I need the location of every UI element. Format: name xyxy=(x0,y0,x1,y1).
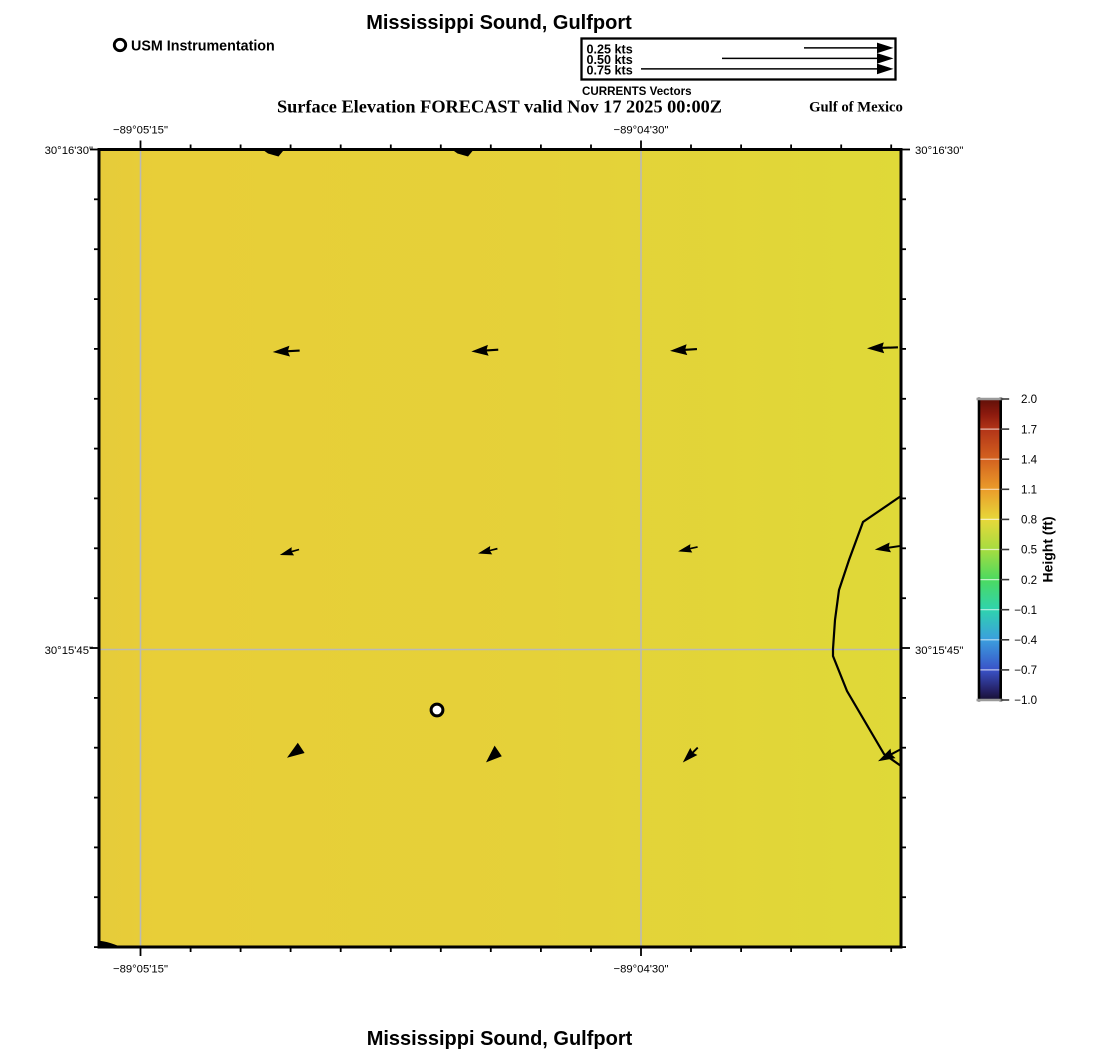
svg-text:1.7: 1.7 xyxy=(1021,423,1037,436)
svg-text:30°16'30": 30°16'30" xyxy=(45,145,93,157)
svg-text:0.8: 0.8 xyxy=(1021,514,1037,527)
svg-text:1.4: 1.4 xyxy=(1021,453,1038,466)
svg-text:−1.0: −1.0 xyxy=(1014,694,1037,707)
svg-text:Surface Elevation FORECAST val: Surface Elevation FORECAST valid Nov 17 … xyxy=(277,97,722,117)
svg-text:−0.7: −0.7 xyxy=(1014,664,1037,677)
svg-text:30°15'45": 30°15'45" xyxy=(45,645,93,657)
svg-text:0.5: 0.5 xyxy=(1021,544,1037,557)
svg-text:−0.1: −0.1 xyxy=(1014,604,1037,617)
svg-text:0.2: 0.2 xyxy=(1021,574,1037,587)
svg-text:−89°04'30": −89°04'30" xyxy=(614,964,669,976)
svg-text:Mississippi Sound, Gulfport: Mississippi Sound, Gulfport xyxy=(366,12,632,34)
svg-text:Height (ft): Height (ft) xyxy=(1040,516,1056,582)
svg-text:−89°04'30": −89°04'30" xyxy=(614,125,669,137)
svg-text:30°16'30": 30°16'30" xyxy=(915,145,963,157)
svg-text:−0.4: −0.4 xyxy=(1014,634,1037,647)
svg-text:Mississippi Sound, Gulfport: Mississippi Sound, Gulfport xyxy=(367,1028,633,1050)
svg-text:1.1: 1.1 xyxy=(1021,484,1037,497)
svg-text:−89°05'15": −89°05'15" xyxy=(113,125,168,137)
svg-text:2.0: 2.0 xyxy=(1021,393,1037,406)
svg-text:USM Instrumentation: USM Instrumentation xyxy=(131,39,275,55)
svg-text:−89°05'15": −89°05'15" xyxy=(113,964,168,976)
svg-text:30°15'45": 30°15'45" xyxy=(915,645,963,657)
svg-text:Gulf of Mexico: Gulf of Mexico xyxy=(809,100,903,116)
svg-text:0.75 kts: 0.75 kts xyxy=(587,64,633,78)
